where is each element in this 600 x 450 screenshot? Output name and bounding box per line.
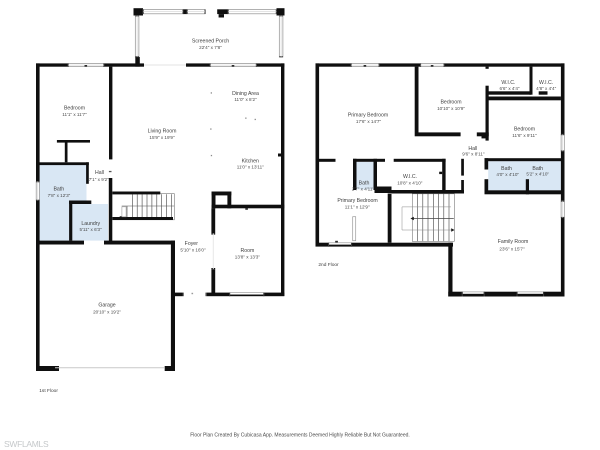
svg-text:5'10" x 16'0": 5'10" x 16'0" (180, 247, 206, 252)
svg-text:Primary Bedroom: Primary Bedroom (337, 198, 377, 204)
svg-text:Screened Porch: Screened Porch (192, 38, 229, 44)
svg-text:5'11" x 6'3": 5'11" x 6'3" (79, 227, 102, 232)
svg-text:Family Room: Family Room (498, 239, 529, 245)
svg-text:11'1" x 12'9": 11'1" x 12'9" (345, 204, 370, 209)
svg-text:4'8" x 4'4": 4'8" x 4'4" (536, 86, 556, 91)
svg-text:7'8" x 12'3": 7'8" x 12'3" (48, 193, 71, 198)
svg-text:Bath: Bath (53, 187, 64, 193)
svg-text:Bedroom: Bedroom (514, 126, 535, 132)
svg-text:10'8" x 4'10": 10'8" x 4'10" (397, 181, 423, 186)
svg-text:13'8" x 13'3": 13'8" x 13'3" (235, 254, 261, 259)
svg-text:7'1" x 9'2": 7'1" x 9'2" (89, 177, 109, 182)
svg-text:Foyer: Foyer (185, 241, 199, 247)
svg-text:4'0" x 4'10": 4'0" x 4'10" (496, 172, 519, 177)
svg-text:2nd Floor: 2nd Floor (318, 262, 339, 268)
svg-text:15'9" x 19'9": 15'9" x 19'9" (149, 135, 175, 140)
svg-text:Floor Plan Created By Cubicasa: Floor Plan Created By Cubicasa App. Meas… (190, 433, 410, 439)
svg-text:11'6" x 9'11": 11'6" x 9'11" (512, 133, 537, 138)
svg-text:10'10" x 10'9": 10'10" x 10'9" (437, 106, 465, 111)
svg-text:Hall: Hall (95, 170, 104, 176)
svg-text:Kitchen: Kitchen (242, 158, 259, 164)
svg-text:6'6" x 4'4": 6'6" x 4'4" (499, 86, 519, 91)
svg-text:11'0" x 13'11": 11'0" x 13'11" (237, 165, 264, 170)
svg-text:2'7" x 4'11": 2'7" x 4'11" (352, 186, 375, 191)
svg-text:Bedroom: Bedroom (64, 105, 85, 111)
svg-text:Bedroom: Bedroom (440, 100, 461, 106)
svg-text:Dining Area: Dining Area (232, 91, 259, 97)
svg-text:5'2" x 4'10": 5'2" x 4'10" (526, 172, 549, 177)
svg-text:Living Room: Living Room (148, 129, 177, 135)
svg-text:23'6" x 15'7": 23'6" x 15'7" (499, 246, 525, 251)
svg-text:Room: Room (240, 248, 254, 254)
svg-text:11'1" x 11'7": 11'1" x 11'7" (62, 112, 87, 117)
svg-text:1st Floor: 1st Floor (39, 388, 58, 394)
svg-text:11'0" x 8'2": 11'0" x 8'2" (234, 97, 257, 102)
svg-text:W.I.C.: W.I.C. (403, 174, 417, 180)
svg-text:17'6" x 14'7": 17'6" x 14'7" (356, 119, 382, 124)
svg-text:Primary Bedroom: Primary Bedroom (348, 113, 388, 119)
svg-text:Garage: Garage (98, 302, 115, 308)
svg-text:20'10" x 19'2": 20'10" x 19'2" (93, 310, 121, 315)
svg-text:9'6" x 8'11": 9'6" x 8'11" (462, 152, 485, 157)
svg-text:22'4" x 7'8": 22'4" x 7'8" (199, 45, 222, 50)
svg-text:SWFLAMLS: SWFLAMLS (4, 439, 49, 449)
